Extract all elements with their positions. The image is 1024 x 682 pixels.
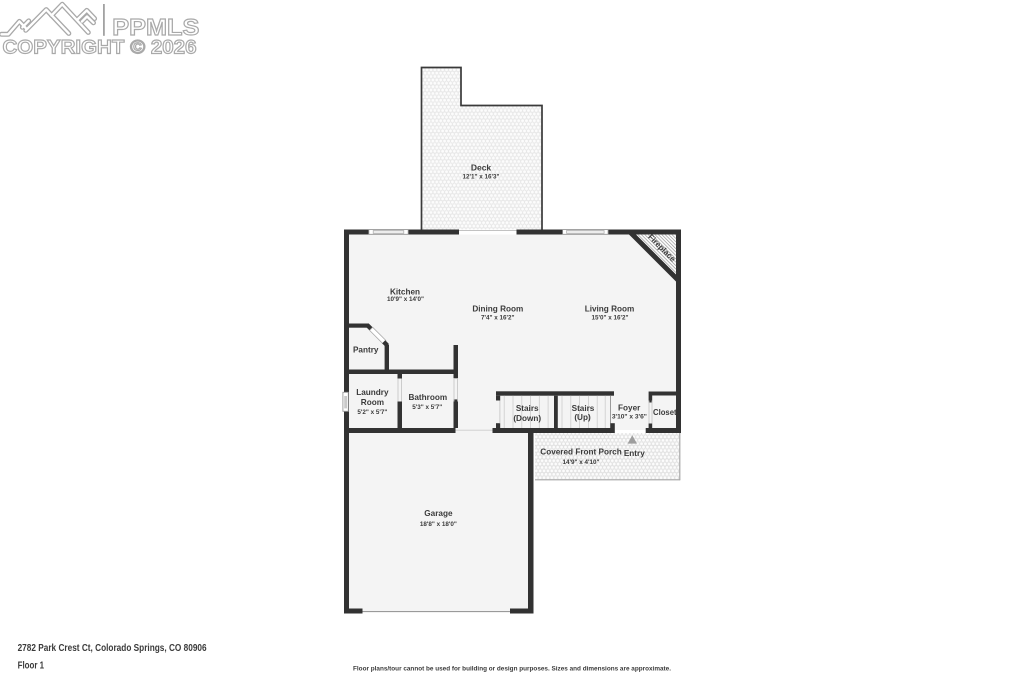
svg-text:7'4" x 16'2": 7'4" x 16'2" [481, 314, 514, 321]
svg-text:Floor plans/tour cannot be use: Floor plans/tour cannot be used for buil… [353, 665, 671, 672]
svg-text:Floor 1: Floor 1 [18, 660, 45, 671]
svg-text:Closet: Closet [653, 408, 677, 417]
svg-text:Stairs: Stairs [516, 404, 539, 413]
svg-text:Laundry: Laundry [356, 388, 389, 397]
svg-text:15'0" x 16'2": 15'0" x 16'2" [592, 314, 629, 321]
svg-text:Garage: Garage [424, 509, 453, 518]
svg-text:10'9" x 14'0": 10'9" x 14'0" [387, 296, 424, 303]
svg-text:5'2" x 5'7": 5'2" x 5'7" [357, 409, 387, 416]
svg-text:COPYRIGHT © 2026: COPYRIGHT © 2026 [3, 37, 197, 59]
svg-text:12'1" x 16'3": 12'1" x 16'3" [463, 174, 500, 181]
svg-text:Covered Front Porch: Covered Front Porch [540, 448, 621, 457]
svg-text:Room: Room [361, 398, 384, 407]
svg-text:Dining Room: Dining Room [472, 304, 523, 313]
svg-text:Deck: Deck [471, 163, 492, 173]
svg-text:18'8" x 18'0": 18'8" x 18'0" [420, 521, 457, 528]
svg-text:Pantry: Pantry [353, 345, 379, 354]
svg-text:Living Room: Living Room [585, 304, 635, 313]
svg-text:Entry: Entry [624, 449, 645, 458]
svg-text:Foyer: Foyer [618, 404, 641, 413]
svg-text:(Up): (Up) [574, 413, 591, 422]
svg-text:Stairs: Stairs [572, 404, 595, 413]
svg-text:Kitchen: Kitchen [390, 287, 420, 296]
svg-text:3'10" x 3'6": 3'10" x 3'6" [612, 414, 647, 421]
svg-text:14'9" x 4'10": 14'9" x 4'10" [563, 459, 600, 466]
svg-text:(Down): (Down) [513, 414, 541, 423]
svg-text:5'3" x 5'7": 5'3" x 5'7" [412, 404, 442, 411]
svg-text:Bathroom: Bathroom [408, 393, 447, 402]
svg-text:2782 Park Crest Ct, Colorado S: 2782 Park Crest Ct, Colorado Springs, CO… [18, 643, 207, 654]
